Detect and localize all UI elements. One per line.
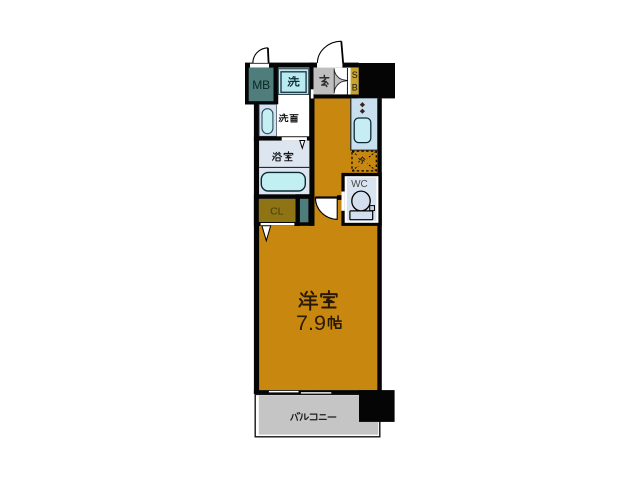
svg-text:MB: MB <box>252 78 270 92</box>
svg-text:S: S <box>352 70 358 80</box>
svg-text:7.9: 7.9 <box>296 311 326 335</box>
svg-text:CL: CL <box>270 205 284 217</box>
svg-text:B: B <box>352 83 358 93</box>
svg-text:WC: WC <box>351 179 368 190</box>
